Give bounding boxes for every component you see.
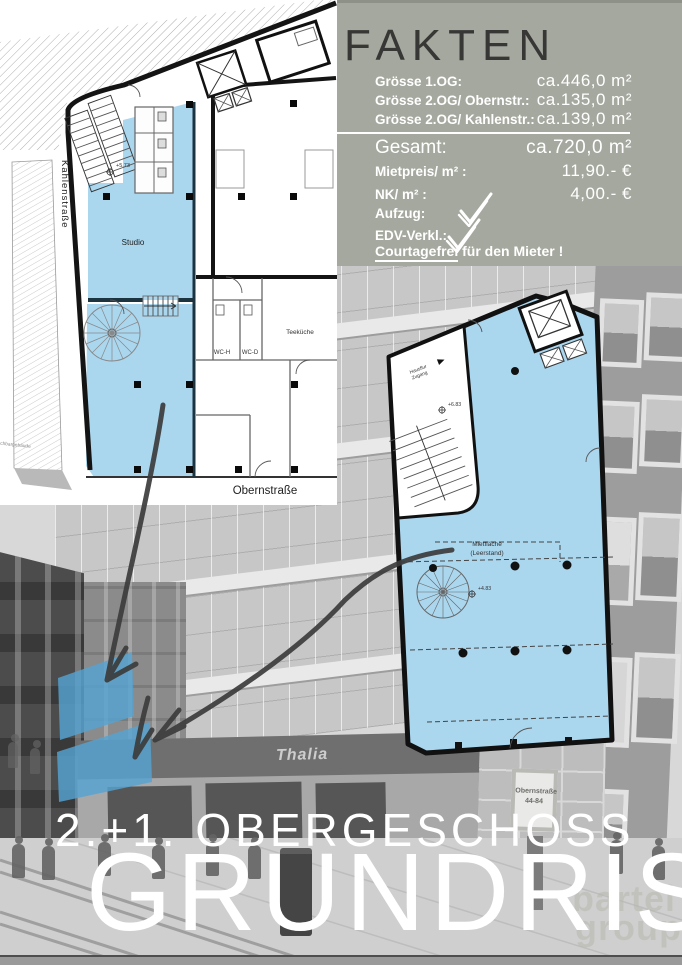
fact-value: 4,00.- € [570,184,632,204]
area-label-1: Mietfläche [472,541,502,548]
area-label-2: (Leerstand) [470,550,503,557]
fact-row: Grösse 2.OG/ Obernstr.: ca.135,0 m² [375,90,632,110]
fact-label: Grösse 2.OG/ Kahlenstr.: [375,112,535,127]
room-label-studio: Studio [122,238,145,247]
spiral-stair-2og [417,566,469,618]
fakten-panel: FAKTEN Grösse 1.OG: ca.446,0 m² Grösse 2… [337,0,682,266]
courtage-rest: für den Mieter ! [458,243,563,259]
room-label-wch: WC-H [214,350,230,356]
fact-row: NK/ m² : 4,00.- € [375,184,632,204]
fact-label: Gesamt: [375,137,447,159]
fact-label: EDV-Verkl.: [375,228,447,243]
floorplan-2og: Hausflur Zugang +6.83 [360,258,630,768]
level-mid-text: +4.83 [478,586,491,592]
fact-label: Grösse 2.OG/ Obernstr.: [375,93,530,108]
fact-value: ca.446,0 m² [537,71,632,91]
fact-row: EDV-Verkl.: [375,228,632,243]
courtage-note: Courtagefrei für den Mieter ! [375,243,563,259]
facade-highlight-upper [58,652,134,740]
street-label-obernstrasse: Obernstraße [233,485,298,497]
room-label-kitchen: Teeküche [286,329,314,336]
expose-page: Thalia Obernstraß [0,0,682,965]
floorplan-1og: +5.73 Studio WC-H WC-D Teeküche Kahlenst… [0,0,337,505]
floorplan-1og-drawing: +5.73 Studio WC-H WC-D Teeküche Kahlenst… [0,0,337,505]
title-grundriss: GRUNDRISS [86,838,682,948]
wc-block [135,107,173,193]
fact-value: 11,90.- € [562,161,632,181]
fact-row: Aufzug: [375,206,632,221]
fact-row: Grösse 1.OG: ca.446,0 m² [375,71,632,91]
fact-value: ca.720,0 m² [526,137,632,159]
street-label-kahlenstrasse: Kahlenstraße [59,160,70,229]
fact-row: Grösse 2.OG/ Kahlenstr.: ca.139,0 m² [375,109,632,129]
fact-label: NK/ m² : [375,187,427,202]
room-label-wcd: WC-D [242,350,259,356]
fact-value: ca.139,0 m² [537,109,632,129]
bottom-bar [0,955,682,965]
stairwell-2og: Hausflur Zugang +6.83 [388,326,479,518]
fact-label: Aufzug: [375,206,425,221]
fakten-title: FAKTEN [344,21,557,71]
fakten-separator [337,132,630,134]
level-text: +5.73 [116,163,130,169]
fact-label: Mietpreis/ m² : [375,164,467,179]
level-top-text: +6.83 [448,402,461,408]
fact-label: Grösse 1.OG: [375,74,462,89]
fact-row-total: Gesamt: ca.720,0 m² [375,137,632,159]
fact-row: Mietpreis/ m² : 11,90.- € [375,161,632,181]
fact-value: ca.135,0 m² [537,90,632,110]
spiral-stair [84,305,140,361]
